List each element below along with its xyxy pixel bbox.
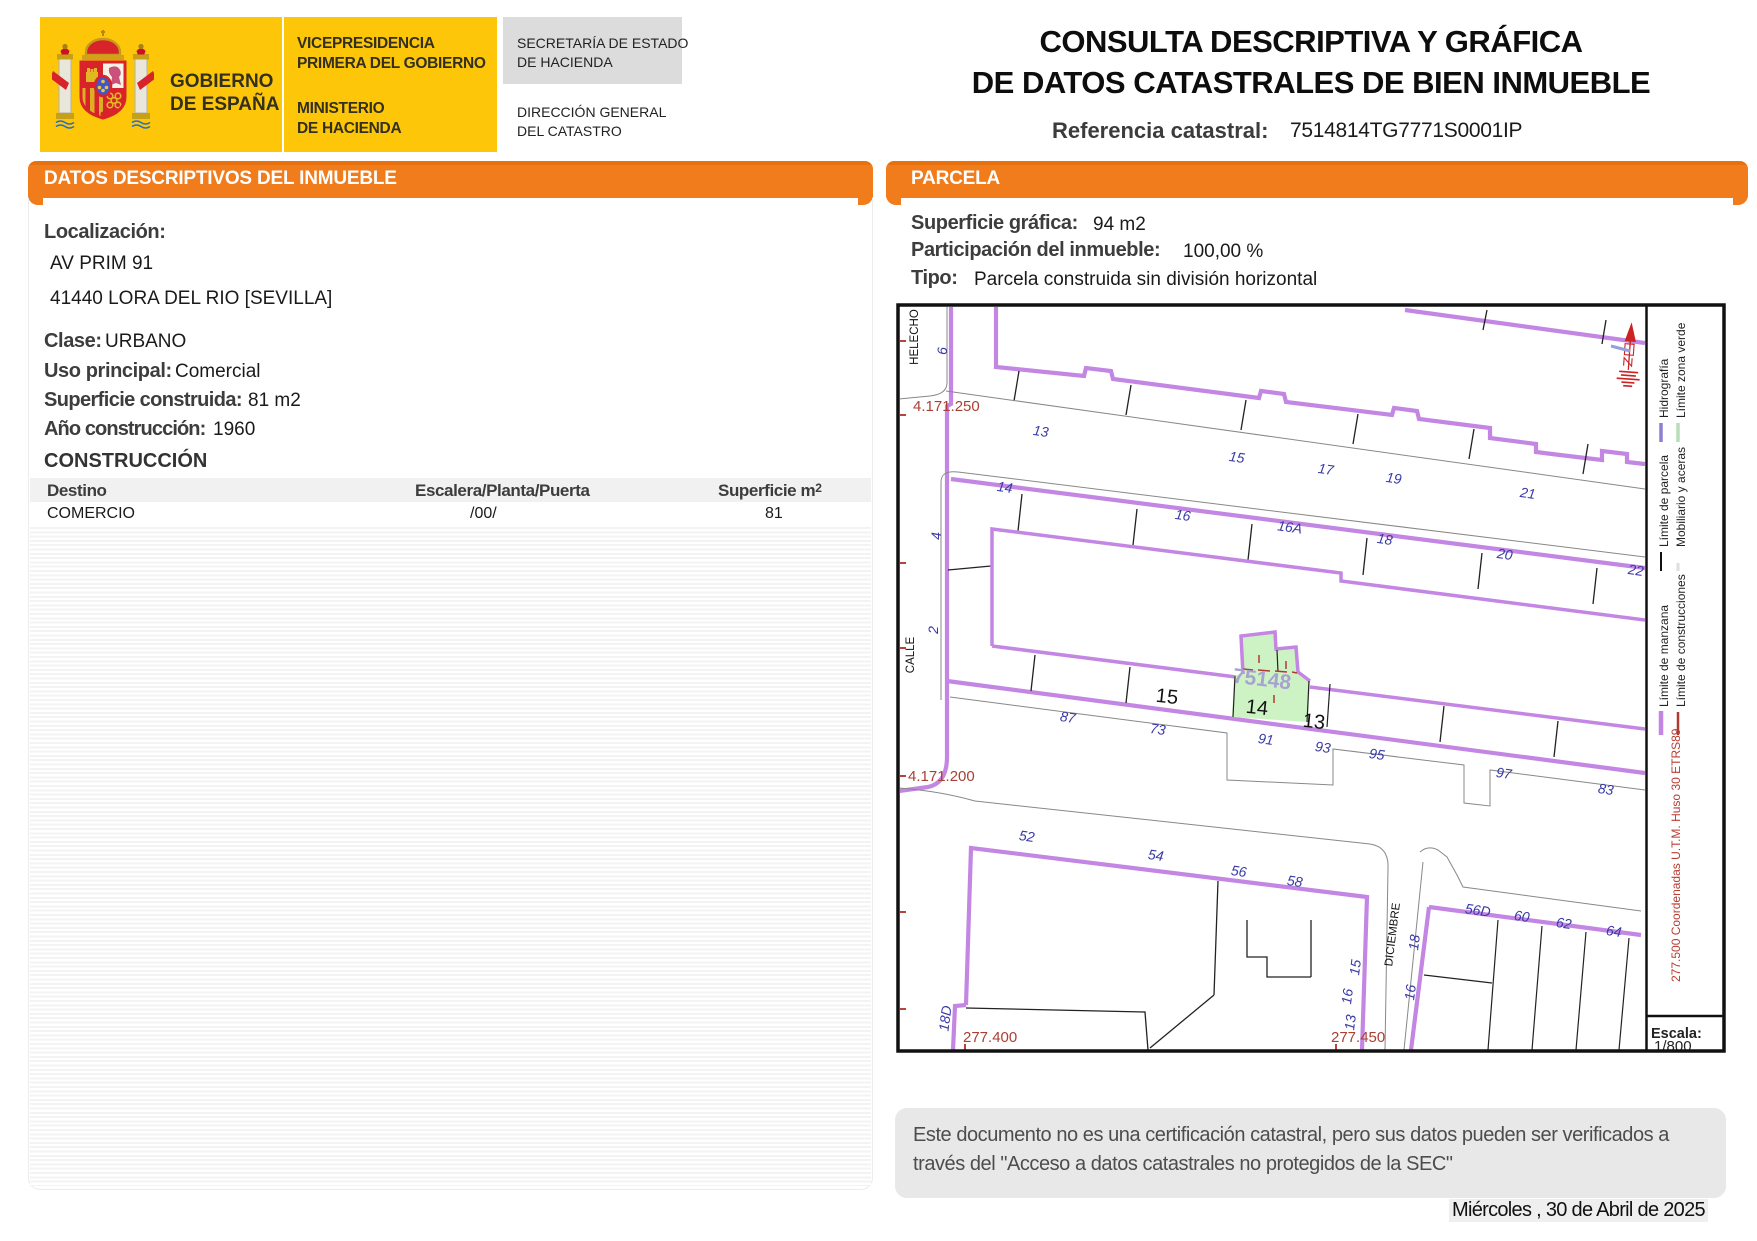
svg-text:18: 18 xyxy=(1376,530,1394,548)
svg-text:91: 91 xyxy=(1257,730,1275,748)
svg-text:73: 73 xyxy=(1149,720,1167,738)
svg-text:14: 14 xyxy=(1245,696,1269,720)
svg-text:4: 4 xyxy=(928,532,944,540)
svg-text:CALLE: CALLE xyxy=(905,636,917,673)
svg-text:56: 56 xyxy=(1230,862,1248,880)
svg-text:52: 52 xyxy=(1018,827,1036,845)
svg-text:22: 22 xyxy=(1626,561,1645,579)
svg-text:14: 14 xyxy=(996,478,1014,496)
svg-text:16: 16 xyxy=(1401,983,1419,1001)
svg-text:4.171.200: 4.171.200 xyxy=(908,768,975,785)
svg-text:54: 54 xyxy=(1147,846,1165,864)
svg-text:2: 2 xyxy=(925,626,941,635)
svg-text:277.450: 277.450 xyxy=(1331,1029,1385,1046)
svg-text:16A: 16A xyxy=(1276,517,1303,536)
svg-text:58: 58 xyxy=(1286,872,1304,890)
svg-text:Hidrografía: Hidrografía xyxy=(1657,358,1671,418)
svg-text:13: 13 xyxy=(1032,422,1050,440)
svg-text:15: 15 xyxy=(1228,448,1246,466)
svg-text:93: 93 xyxy=(1314,738,1332,756)
svg-text:87: 87 xyxy=(1059,708,1078,726)
svg-text:83: 83 xyxy=(1597,780,1615,798)
svg-text:60: 60 xyxy=(1513,907,1531,925)
svg-text:15: 15 xyxy=(1155,685,1179,709)
svg-text:17: 17 xyxy=(1317,460,1336,478)
svg-text:6: 6 xyxy=(934,347,950,355)
svg-text:277.400: 277.400 xyxy=(963,1029,1017,1046)
svg-text:HELECHO: HELECHO xyxy=(909,309,921,365)
svg-text:18: 18 xyxy=(1405,933,1423,951)
svg-text:Límite de parcela: Límite de parcela xyxy=(1657,455,1671,547)
svg-text:95: 95 xyxy=(1368,745,1386,763)
svg-text:15: 15 xyxy=(1346,958,1364,976)
svg-text:Límite zona verde: Límite zona verde xyxy=(1674,322,1688,418)
svg-text:56D: 56D xyxy=(1464,900,1492,919)
svg-text:DICIEMBRE: DICIEMBRE xyxy=(1383,902,1403,967)
svg-text:277.500 Coordenadas U.T.M. Hus: 277.500 Coordenadas U.T.M. Huso 30 ETRS8… xyxy=(1669,728,1683,982)
svg-text:19: 19 xyxy=(1385,469,1403,487)
svg-text:18D: 18D xyxy=(936,1005,955,1032)
svg-text:97: 97 xyxy=(1495,764,1514,782)
svg-text:16: 16 xyxy=(1174,506,1192,524)
svg-text:21: 21 xyxy=(1518,484,1537,502)
svg-text:62: 62 xyxy=(1555,914,1573,932)
svg-text:13: 13 xyxy=(1302,710,1326,734)
svg-text:64: 64 xyxy=(1605,922,1623,940)
svg-text:16: 16 xyxy=(1338,987,1356,1005)
svg-text:Límite de manzana: Límite de manzana xyxy=(1657,605,1671,707)
svg-text:Límite de construcciones: Límite de construcciones xyxy=(1674,574,1688,707)
svg-text:Mobiliario y aceras: Mobiliario y aceras xyxy=(1674,447,1688,547)
svg-text:20: 20 xyxy=(1495,545,1514,563)
svg-text:4.171.250: 4.171.250 xyxy=(913,398,980,415)
